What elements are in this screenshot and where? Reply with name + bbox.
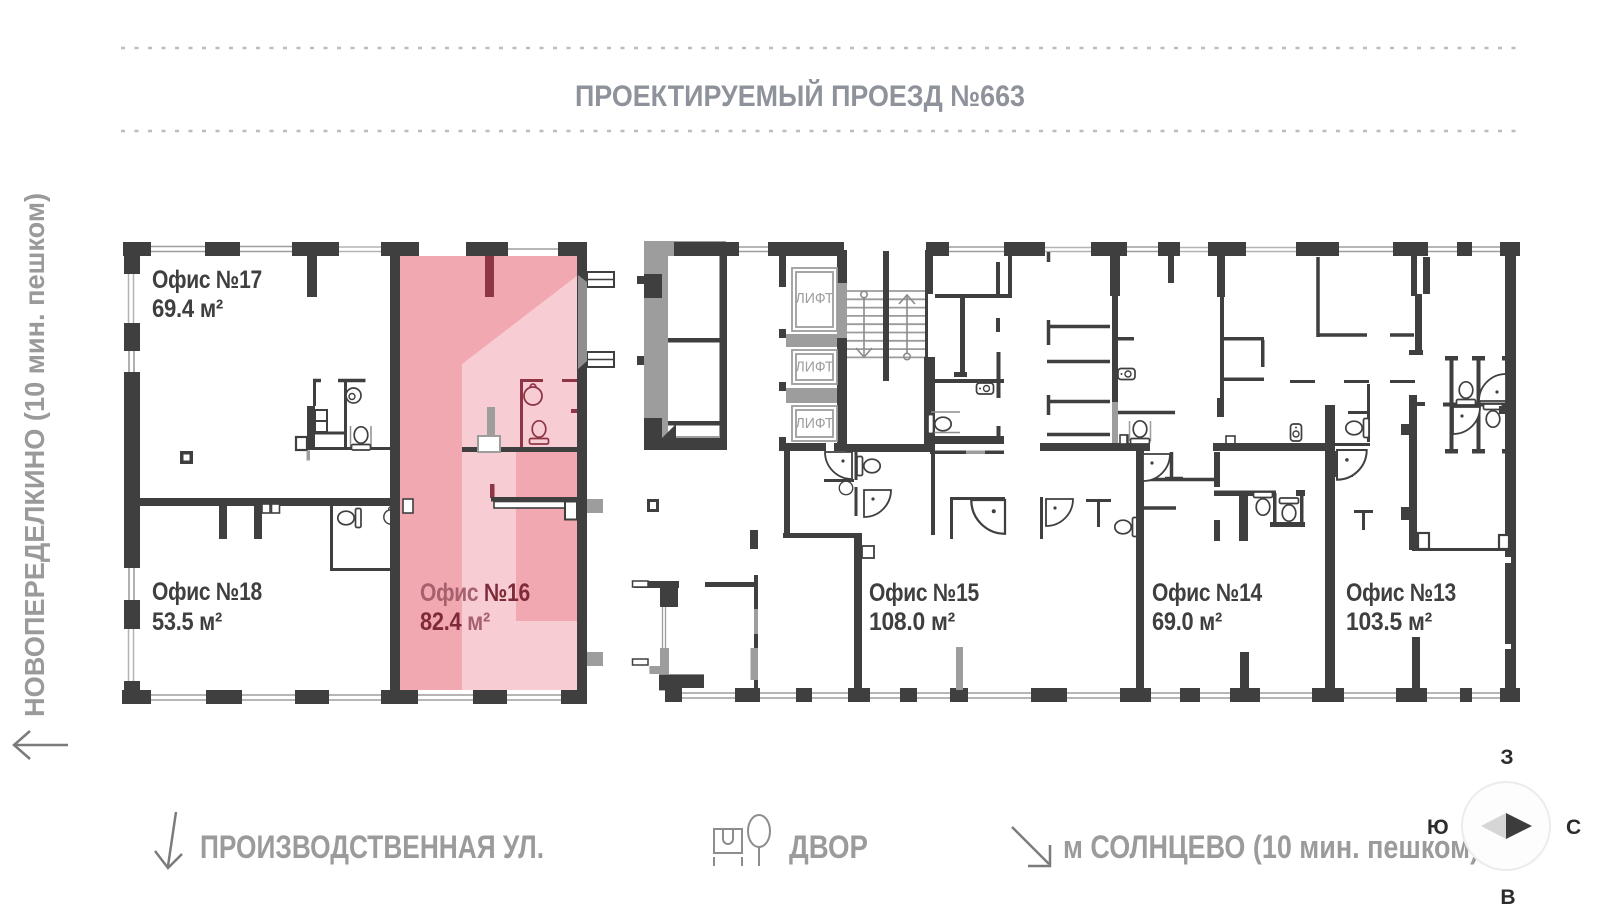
svg-text:ПРОЕКТИРУЕМЫЙ ПРОЕЗД №663: ПРОЕКТИРУЕМЫЙ ПРОЕЗД №663: [575, 79, 1025, 113]
svg-text:Ю: Ю: [1427, 816, 1449, 839]
svg-text:103.5 м²: 103.5 м²: [1346, 608, 1432, 636]
svg-text:Офис №14: Офис №14: [1152, 579, 1262, 607]
svg-text:Офис №18: Офис №18: [152, 578, 262, 606]
svg-text:Офис №16: Офис №16: [420, 579, 530, 607]
svg-text:Офис №13: Офис №13: [1346, 579, 1456, 607]
svg-text:Офис №15: Офис №15: [869, 579, 979, 607]
svg-text:ДВОР: ДВОР: [789, 829, 868, 865]
svg-text:ЛИФТ: ЛИФТ: [796, 360, 834, 376]
svg-text:82.4 м²: 82.4 м²: [420, 608, 490, 636]
svg-text:ЛИФТ: ЛИФТ: [796, 291, 834, 307]
svg-text:НОВОПЕРЕДЕЛКИНО (10 мин. пешко: НОВОПЕРЕДЕЛКИНО (10 мин. пешком): [19, 193, 50, 717]
svg-text:69.4 м²: 69.4 м²: [152, 295, 223, 323]
svg-text:ЛИФТ: ЛИФТ: [796, 416, 834, 432]
svg-text:69.0 м²: 69.0 м²: [1152, 608, 1222, 636]
svg-text:Офис №17: Офис №17: [152, 266, 262, 294]
svg-text:м СОЛНЦЕВО (10 мин. пешком): м СОЛНЦЕВО (10 мин. пешком): [1063, 829, 1479, 865]
svg-text:В: В: [1500, 886, 1515, 909]
svg-text:З: З: [1500, 746, 1513, 769]
svg-text:108.0 м²: 108.0 м²: [869, 608, 955, 636]
svg-text:С: С: [1566, 816, 1581, 839]
svg-text:ПРОИЗВОДСТВЕННАЯ УЛ.: ПРОИЗВОДСТВЕННАЯ УЛ.: [200, 829, 544, 865]
svg-text:53.5 м²: 53.5 м²: [152, 608, 222, 636]
